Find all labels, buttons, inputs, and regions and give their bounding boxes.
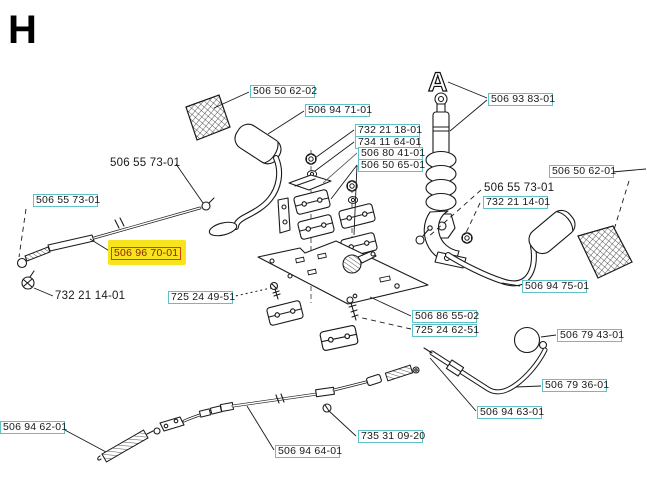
label-506-94-62-01[interactable]: 506 94 62-01: [0, 421, 65, 434]
lower-clamp-blocks: [266, 300, 358, 351]
mounting-plate: [258, 241, 428, 304]
label-506-94-63-01[interactable]: 506 94 63-01: [477, 406, 542, 419]
label-506-94-75-01[interactable]: 506 94 75-01: [522, 280, 587, 293]
lever-rod-with-knob: [424, 328, 547, 392]
label-732-21-14-01-left: 732 21 14-01: [55, 290, 125, 303]
hardware-stack-left: [289, 154, 335, 240]
label-735-31-09-20[interactable]: 735 31 09-20: [358, 430, 423, 443]
bottom-cable-assembly: [98, 365, 419, 462]
label-506-50-62-01[interactable]: 506 50 62-01: [549, 165, 614, 178]
label-725-24-49-51[interactable]: 725 24 49-51: [168, 291, 233, 304]
label-725-24-62-51[interactable]: 725 24 62-51: [412, 324, 477, 337]
label-506-96-70-01-highlight[interactable]: 506 96 70-01: [108, 240, 186, 265]
label-506-94-64-01[interactable]: 506 94 64-01: [275, 445, 340, 458]
label-506-55-73-01-topleft: 506 55 73-01: [110, 157, 180, 170]
label-506-50-65-01[interactable]: 506 50 65-01: [358, 159, 423, 172]
label-506-55-73-01-right: 506 55 73-01: [484, 182, 554, 195]
pedal-assembly-left: [186, 95, 290, 238]
pedal-assembly-right: [448, 206, 632, 283]
page-title: H: [8, 8, 37, 52]
label-506-50-62-02[interactable]: 506 50 62-02: [250, 85, 315, 98]
callout-letter-a: A: [428, 67, 448, 97]
label-506-94-71-01[interactable]: 506 94 71-01: [305, 104, 370, 117]
parts-diagram-page: A: [0, 0, 647, 498]
highlighted-part-number: 506 96 70-01: [111, 247, 181, 260]
label-506-79-36-01[interactable]: 506 79 36-01: [542, 379, 607, 392]
label-506-79-43-01[interactable]: 506 79 43-01: [557, 329, 622, 342]
label-506-86-55-02[interactable]: 506 86 55-02: [412, 310, 477, 323]
label-506-93-83-01[interactable]: 506 93 83-01: [488, 93, 553, 106]
label-732-21-14-01-right[interactable]: 732 21 14-01: [483, 196, 548, 209]
exploded-parts-drawing: A: [0, 0, 647, 498]
label-506-55-73-01-left[interactable]: 506 55 73-01: [33, 194, 98, 207]
